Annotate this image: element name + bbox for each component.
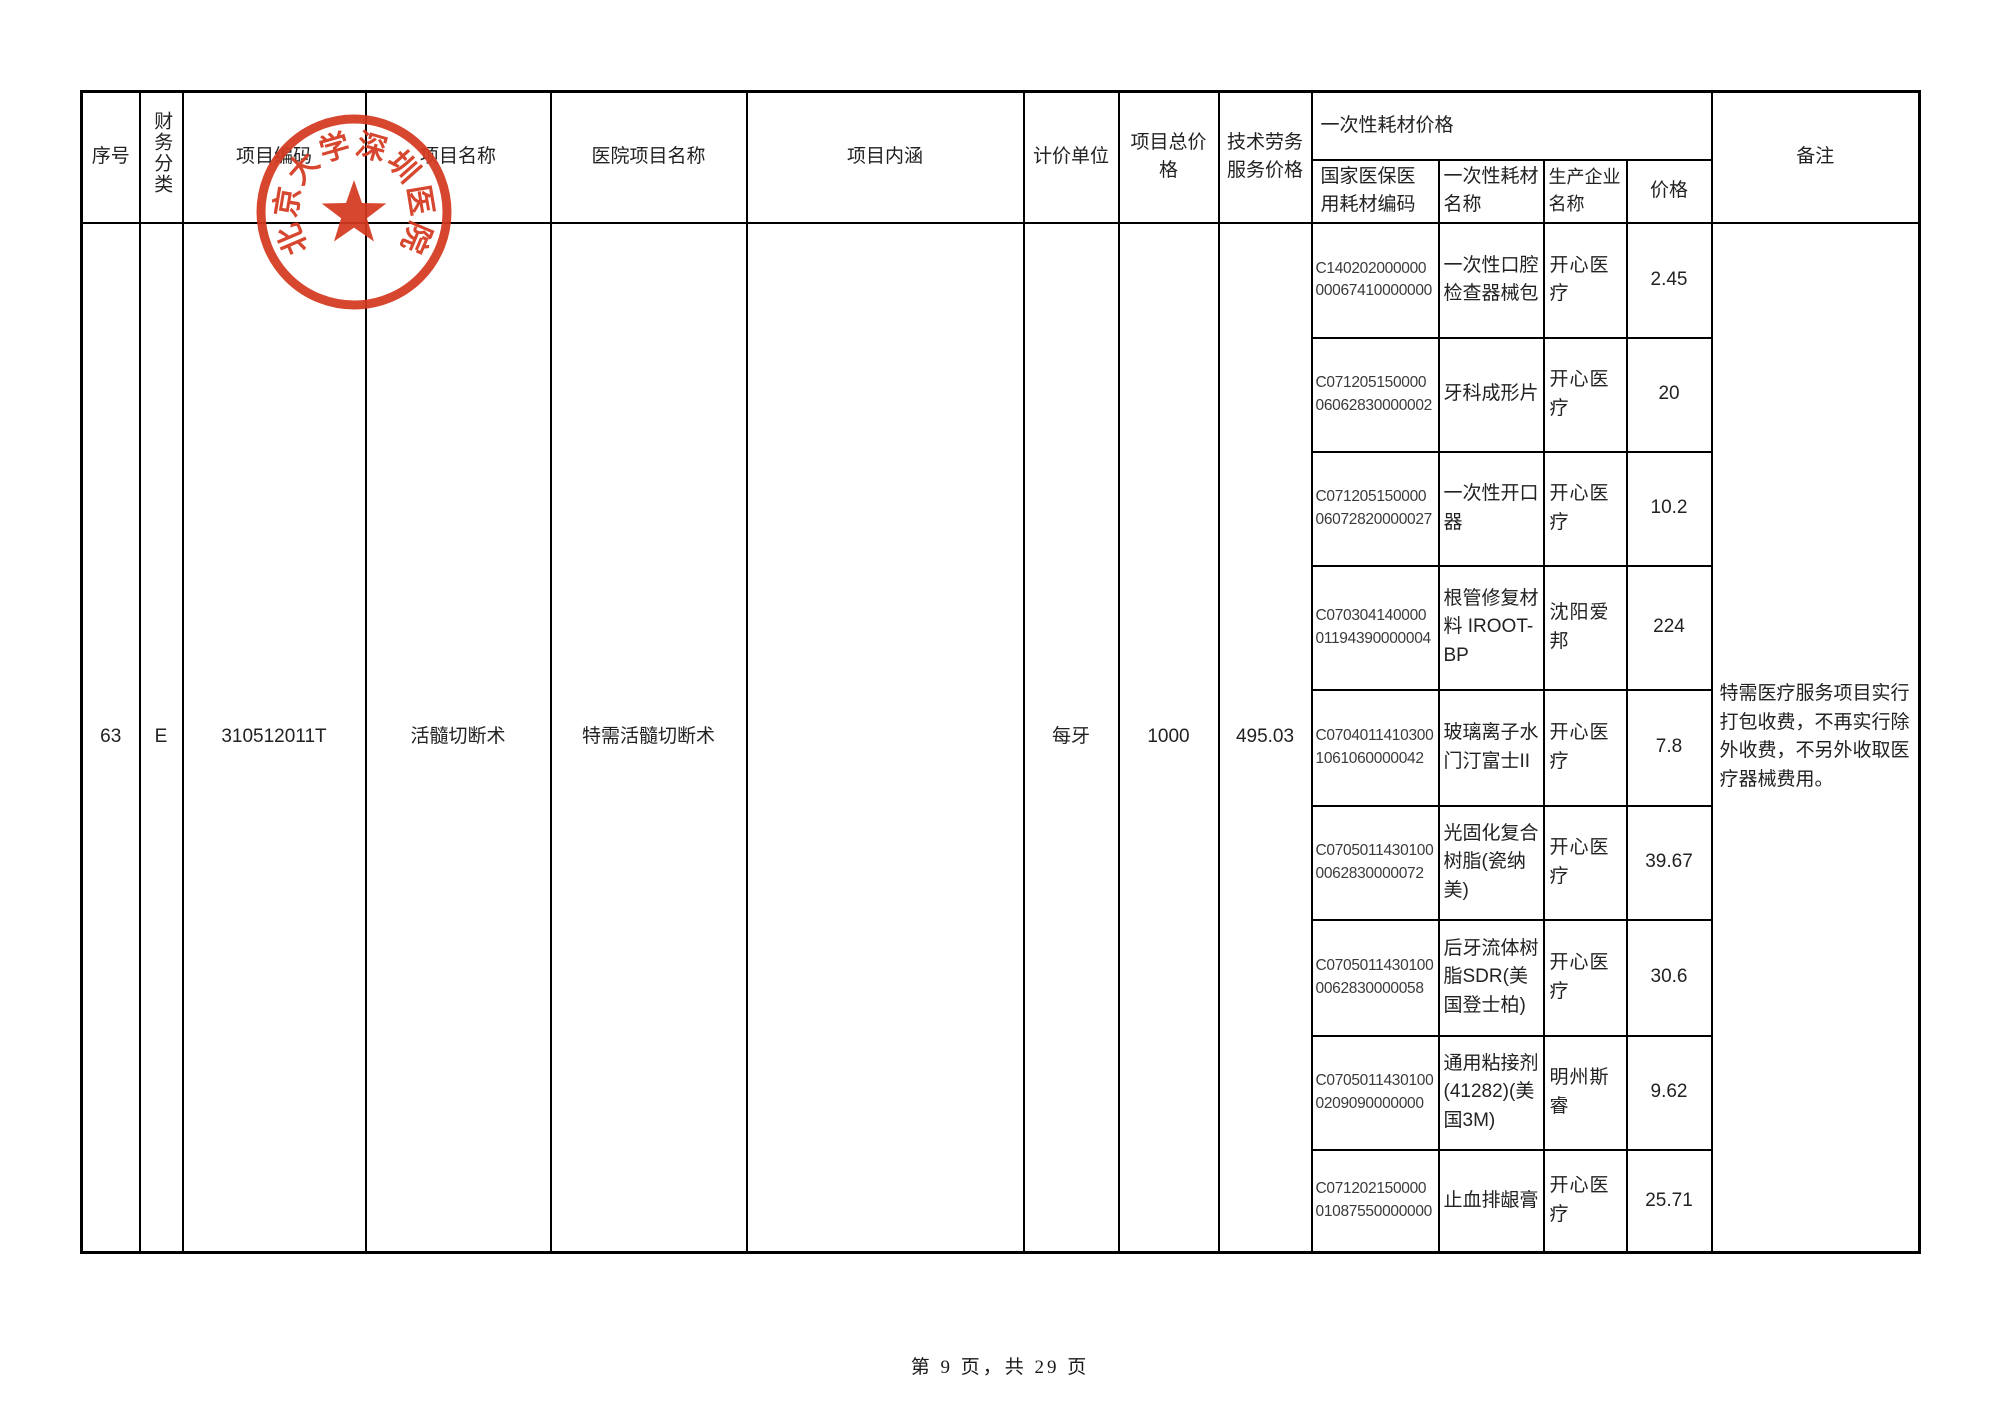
cell-unit: 每牙	[1024, 223, 1119, 1253]
consumable-price: 224	[1627, 566, 1712, 690]
consumable-code: C07030414000001194390000004	[1312, 566, 1439, 690]
cell-finance-class: E	[140, 223, 183, 1253]
consumable-price: 30.6	[1627, 920, 1712, 1036]
consumable-name: 通用粘接剂(41282)(美国3M)	[1439, 1036, 1544, 1150]
consumable-manufacturer: 开心医疗	[1544, 452, 1627, 566]
consumable-name: 一次性开口器	[1439, 452, 1544, 566]
finance-class-label: 财务分类	[147, 111, 176, 195]
cell-project-code: 310512011T	[183, 223, 366, 1253]
consumable-code: C07120515000006072820000027	[1312, 452, 1439, 566]
col-header-manufacturer: 生产企业名称	[1544, 160, 1627, 223]
consumable-manufacturer: 沈阳爱邦	[1544, 566, 1627, 690]
consumable-row: 63 E 310512011T 活髓切断术 特需活髓切断术 每牙 1000 49…	[82, 223, 1920, 338]
cell-project-name: 活髓切断术	[366, 223, 551, 1253]
consumable-name: 止血排龈膏	[1439, 1150, 1544, 1253]
col-header-project-content: 项目内涵	[747, 92, 1024, 223]
col-header-remark: 备注	[1712, 92, 1920, 223]
consumable-manufacturer: 开心医疗	[1544, 690, 1627, 806]
col-header-unit: 计价单位	[1024, 92, 1119, 223]
medical-price-table: 序号 财务分类 项目编码 项目名称 医院项目名称 项目内涵 计价单位 项目总价格…	[80, 90, 1921, 1254]
consumable-code: C07120515000006062830000002	[1312, 338, 1439, 452]
col-header-consumable-code: 国家医保医用耗材编码	[1312, 160, 1439, 223]
col-header-project-name: 项目名称	[366, 92, 551, 223]
consumable-name: 牙科成形片	[1439, 338, 1544, 452]
cell-hospital-project-name: 特需活髓切断术	[551, 223, 747, 1253]
consumable-code: C07050114301000209090000000	[1312, 1036, 1439, 1150]
consumable-code: C07050114301000062830000058	[1312, 920, 1439, 1036]
consumable-code: C07050114301000062830000072	[1312, 806, 1439, 920]
col-header-consumable-name: 一次性耗材名称	[1439, 160, 1544, 223]
col-header-hospital-project-name: 医院项目名称	[551, 92, 747, 223]
consumable-price: 25.71	[1627, 1150, 1712, 1253]
consumable-code: C07120215000001087550000000	[1312, 1150, 1439, 1253]
col-header-total-price: 项目总价格	[1119, 92, 1219, 223]
col-header-consumable-group: 一次性耗材价格	[1312, 92, 1712, 160]
header-row-1: 序号 财务分类 项目编码 项目名称 医院项目名称 项目内涵 计价单位 项目总价格…	[82, 92, 1920, 160]
consumable-price: 20	[1627, 338, 1712, 452]
consumable-manufacturer: 开心医疗	[1544, 1150, 1627, 1253]
consumable-code: C07040114103001061060000042	[1312, 690, 1439, 806]
col-header-tech-service-price: 技术劳务服务价格	[1219, 92, 1312, 223]
consumable-code: C14020200000000067410000000	[1312, 223, 1439, 338]
col-header-project-code: 项目编码	[183, 92, 366, 223]
cell-project-content	[747, 223, 1024, 1253]
consumable-name: 一次性口腔检查器械包	[1439, 223, 1544, 338]
consumable-name: 玻璃离子水门汀富士II	[1439, 690, 1544, 806]
consumable-manufacturer: 开心医疗	[1544, 806, 1627, 920]
consumable-price: 2.45	[1627, 223, 1712, 338]
consumable-price: 10.2	[1627, 452, 1712, 566]
consumable-manufacturer: 开心医疗	[1544, 223, 1627, 338]
consumable-manufacturer: 开心医疗	[1544, 338, 1627, 452]
consumable-price: 7.8	[1627, 690, 1712, 806]
consumable-name: 光固化复合树脂(瓷纳美)	[1439, 806, 1544, 920]
consumable-name: 后牙流体树脂SDR(美国登士柏)	[1439, 920, 1544, 1036]
col-header-index: 序号	[82, 92, 140, 223]
consumable-manufacturer: 明州斯睿	[1544, 1036, 1627, 1150]
consumable-name: 根管修复材料 IROOT-BP	[1439, 566, 1544, 690]
col-header-price: 价格	[1627, 160, 1712, 223]
cell-remark: 特需医疗服务项目实行打包收费，不再实行除外收费，不另外收取医疗器械费用。	[1712, 223, 1920, 1253]
consumable-manufacturer: 开心医疗	[1544, 920, 1627, 1036]
consumable-price: 9.62	[1627, 1036, 1712, 1150]
document-page: 序号 财务分类 项目编码 项目名称 医院项目名称 项目内涵 计价单位 项目总价格…	[0, 0, 2000, 1414]
cell-total-price: 1000	[1119, 223, 1219, 1253]
consumable-price: 39.67	[1627, 806, 1712, 920]
col-header-finance-class: 财务分类	[140, 92, 183, 223]
cell-tech-service-price: 495.03	[1219, 223, 1312, 1253]
page-number-footer: 第 9 页，共 29 页	[0, 1352, 2000, 1379]
cell-index: 63	[82, 223, 140, 1253]
